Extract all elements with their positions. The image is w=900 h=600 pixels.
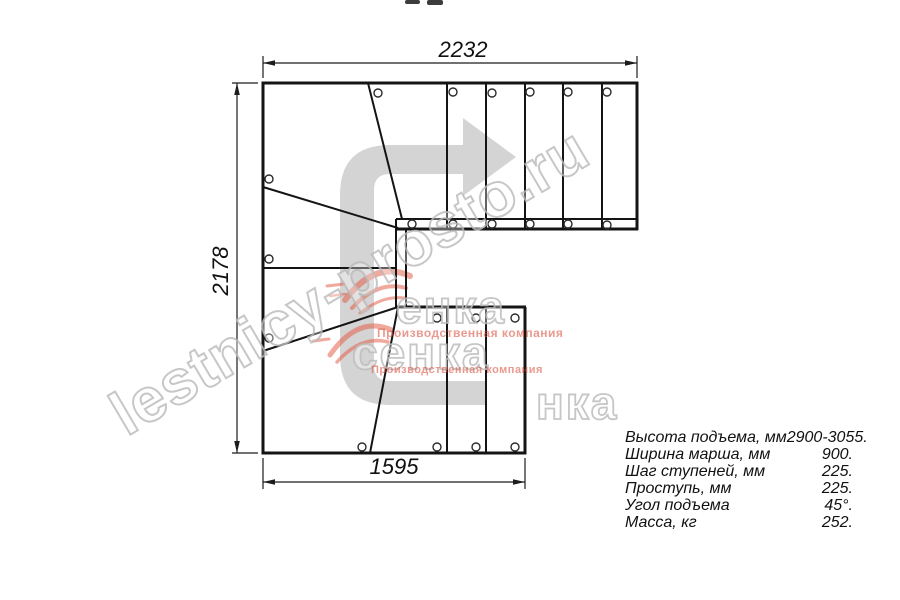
spec-value: 252. (822, 514, 853, 531)
spec-row: Угол подъема 45°. (625, 497, 853, 514)
spec-value: 45°. (824, 497, 853, 514)
dimension-left-label: 2178 (210, 241, 232, 301)
spec-label: Шаг ступеней, мм (625, 463, 765, 480)
direction-arrow (340, 118, 516, 405)
spec-label: Проступь, мм (625, 480, 731, 497)
spec-row: Проступь, мм 225. (625, 480, 853, 497)
spec-row: Ширина марша, мм 900. (625, 446, 853, 463)
spec-row: Шаг ступеней, мм 225. (625, 463, 853, 480)
spec-row: Масса, кг 252. (625, 514, 853, 531)
spec-label: Масса, кг (625, 514, 697, 531)
spec-value: 2900-3055. (787, 429, 868, 446)
dimension-bottom-label: 1595 (364, 456, 424, 478)
spec-label: Угол подъема (625, 497, 730, 514)
spec-row: Высота подъема, мм 2900-3055. (625, 429, 853, 446)
staircase-plan-page: 2232 2178 1595 енка Производственная ком… (0, 0, 900, 600)
specs-table: Высота подъема, мм 2900-3055. Ширина мар… (625, 429, 853, 531)
dimension-lines (232, 56, 637, 489)
spec-value: 225. (822, 463, 853, 480)
dimension-top-label: 2232 (433, 39, 493, 61)
spec-value: 225. (822, 480, 853, 497)
spec-label: Высота подъема, мм (625, 429, 787, 446)
spec-label: Ширина марша, мм (625, 446, 770, 463)
spec-value: 900. (822, 446, 853, 463)
